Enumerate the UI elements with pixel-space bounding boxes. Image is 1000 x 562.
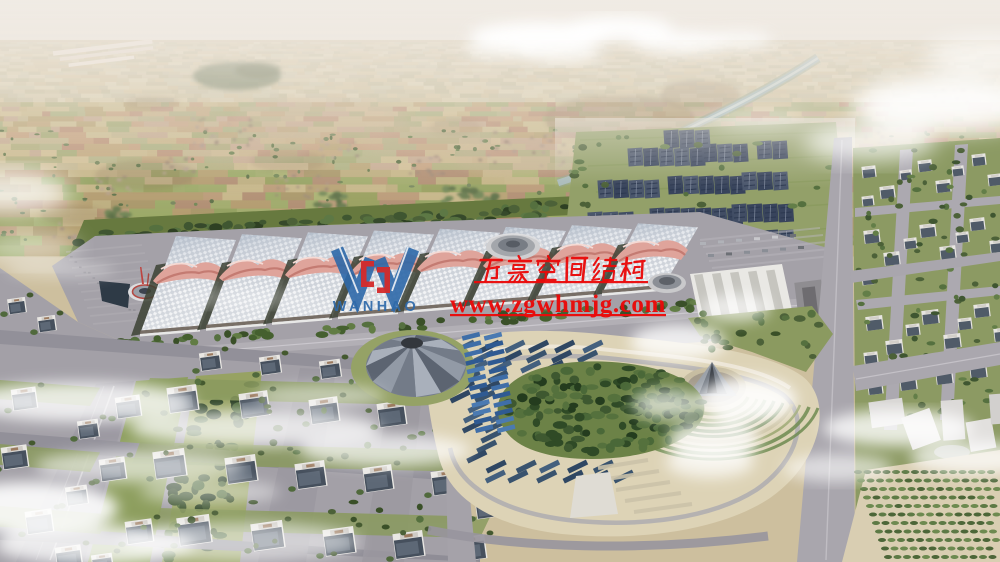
svg-text:www.zgwhmjg.com: www.zgwhmjg.com — [450, 291, 666, 318]
svg-text:WANHAO: WANHAO — [333, 299, 419, 315]
